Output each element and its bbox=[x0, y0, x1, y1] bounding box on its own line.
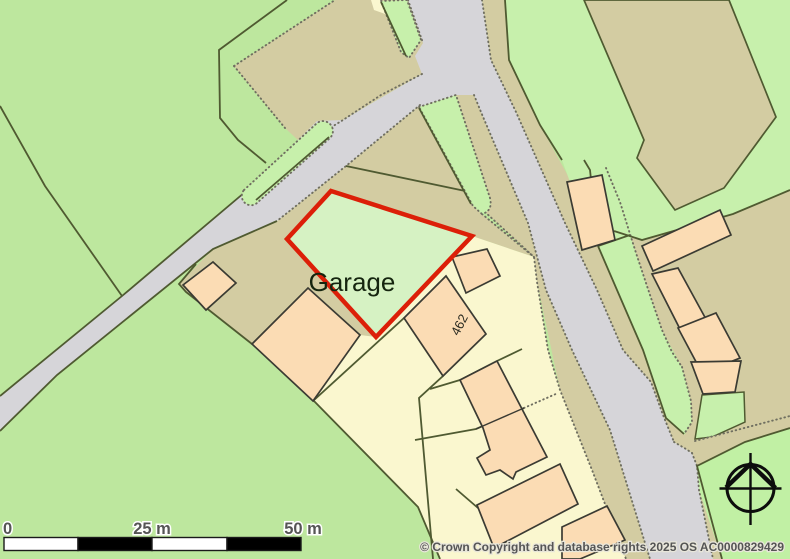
svg-text:25 m: 25 m bbox=[133, 520, 171, 538]
svg-text:© Crown Copyright and database: © Crown Copyright and database rights 20… bbox=[420, 540, 784, 554]
svg-text:Garage: Garage bbox=[309, 267, 396, 297]
svg-text:50 m: 50 m bbox=[284, 520, 322, 538]
svg-text:0: 0 bbox=[3, 520, 12, 538]
